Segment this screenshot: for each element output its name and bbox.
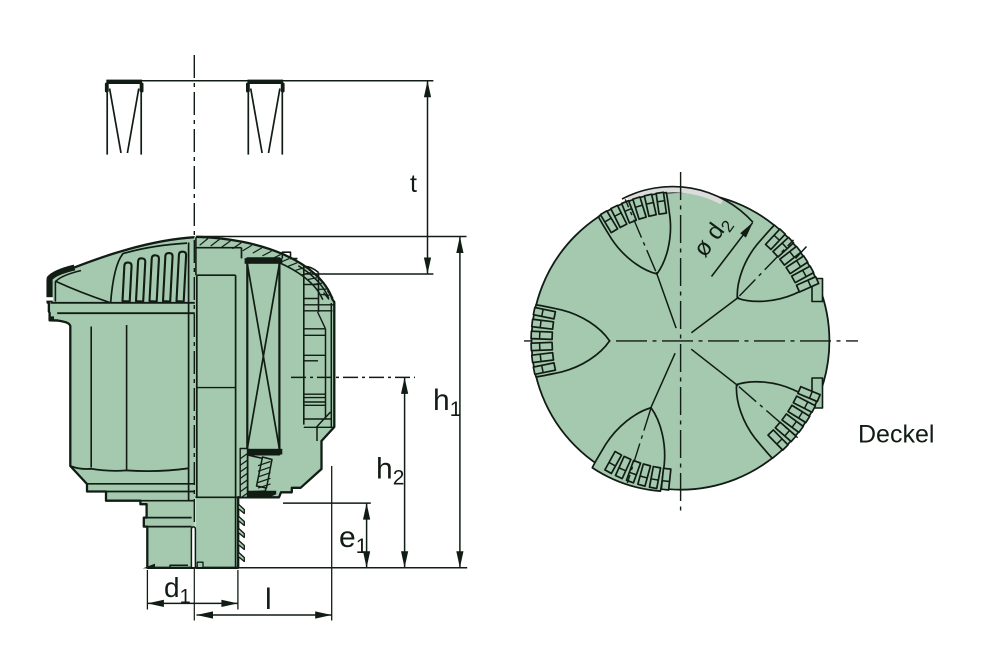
svg-text:h2: h2: [376, 453, 404, 490]
svg-text:d1: d1: [164, 572, 191, 608]
svg-text:t: t: [410, 170, 417, 198]
svg-text:l: l: [265, 583, 272, 616]
svg-text:e1: e1: [339, 521, 367, 558]
svg-text:Deckel: Deckel: [858, 421, 934, 449]
svg-text:h1: h1: [433, 384, 461, 421]
